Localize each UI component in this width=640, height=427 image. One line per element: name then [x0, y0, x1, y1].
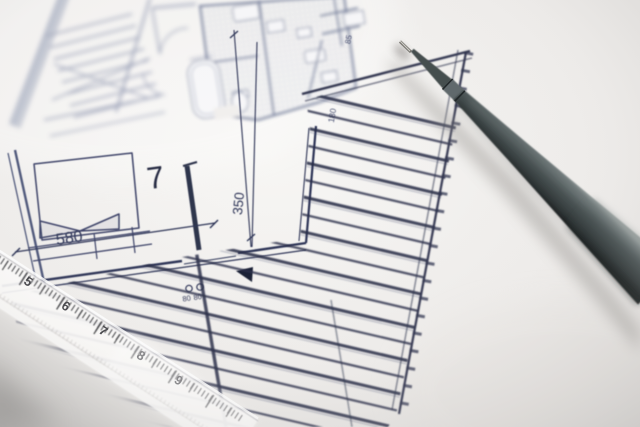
scene-canvas: 7 580	[0, 0, 640, 427]
vignette-overlay	[0, 0, 640, 427]
photo-floorplan-scene: 7 580	[0, 0, 640, 427]
